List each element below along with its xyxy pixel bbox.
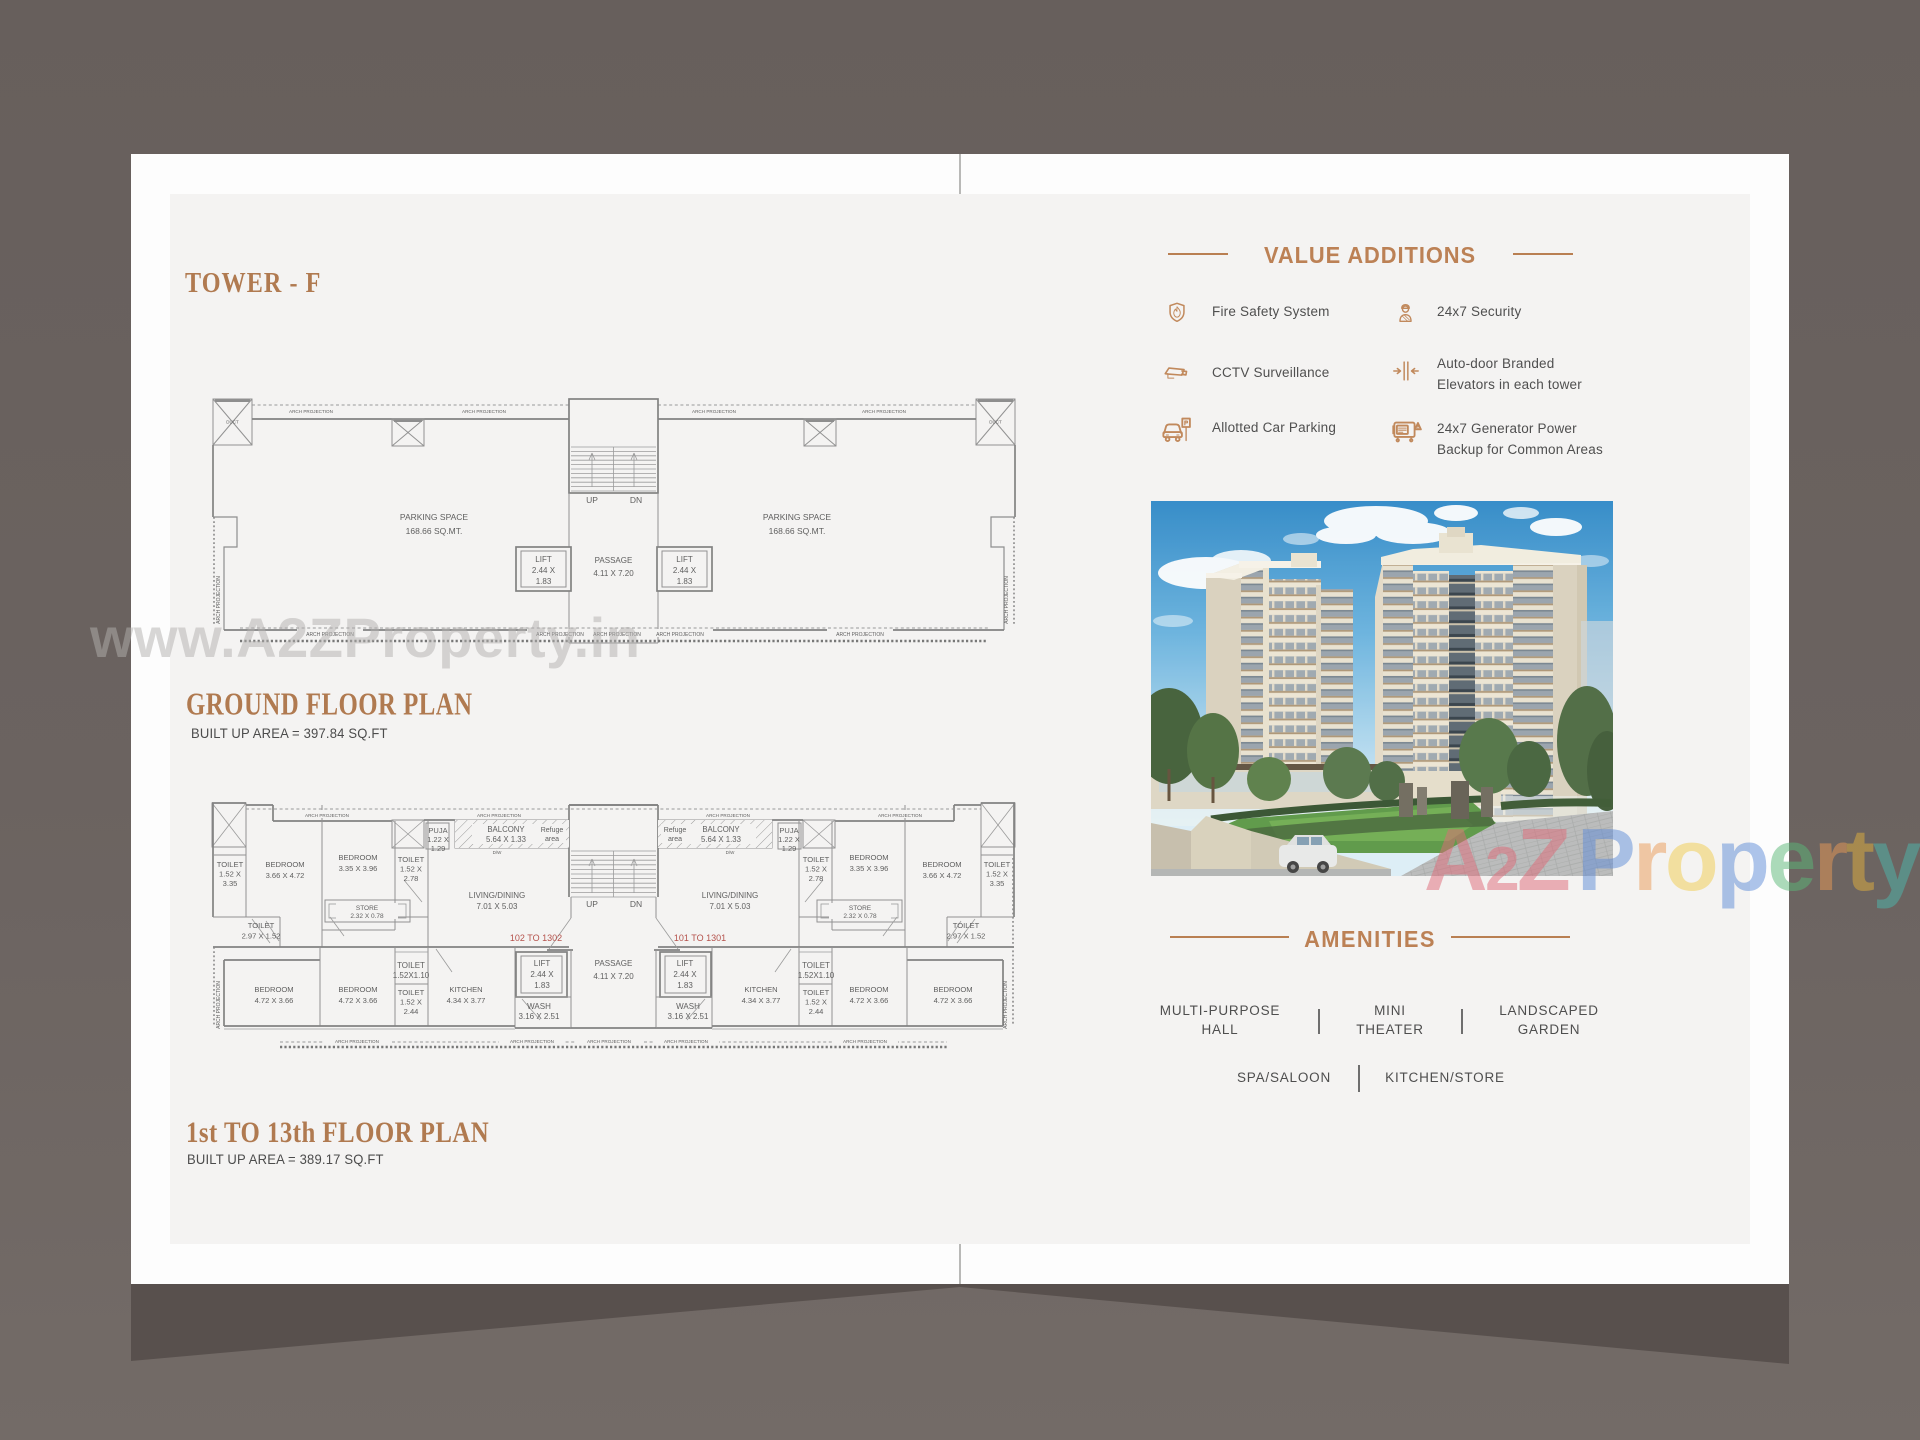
- svg-text:ARCH PROJECTION: ARCH PROJECTION: [510, 1039, 554, 1044]
- svg-text:2.44 X: 2.44 X: [673, 970, 697, 979]
- svg-text:area: area: [668, 836, 682, 843]
- svg-text:BALCONY: BALCONY: [702, 825, 740, 834]
- svg-text:3.66 X 4.72: 3.66 X 4.72: [923, 871, 962, 880]
- svg-text:LIVING/DINING: LIVING/DINING: [469, 891, 525, 900]
- svg-text:D/W: D/W: [726, 850, 736, 855]
- svg-text:ARCH PROJECTION: ARCH PROJECTION: [335, 1039, 379, 1044]
- svg-text:PUJA: PUJA: [779, 826, 798, 835]
- svg-text:BEDROOM: BEDROOM: [265, 860, 304, 869]
- svg-text:DN: DN: [630, 899, 642, 909]
- svg-text:UP: UP: [586, 899, 598, 909]
- svg-text:D/W: D/W: [493, 850, 503, 855]
- svg-text:TOILET: TOILET: [802, 961, 830, 970]
- svg-text:BEDROOM: BEDROOM: [254, 985, 293, 994]
- svg-text:3.35: 3.35: [990, 879, 1005, 888]
- svg-text:1.52 X: 1.52 X: [805, 998, 827, 1007]
- svg-text:BALCONY: BALCONY: [487, 825, 525, 834]
- svg-text:TOILET: TOILET: [248, 921, 275, 930]
- svg-text:2.78: 2.78: [809, 874, 824, 883]
- svg-text:4.72 X 3.66: 4.72 X 3.66: [339, 996, 378, 1005]
- svg-text:STORE: STORE: [356, 905, 379, 912]
- svg-text:TOILET: TOILET: [398, 855, 425, 864]
- svg-text:1.29: 1.29: [431, 844, 446, 853]
- svg-text:2.97 X 1.52: 2.97 X 1.52: [947, 932, 986, 941]
- svg-text:TOILET: TOILET: [217, 860, 244, 869]
- svg-text:4.72 X 3.66: 4.72 X 3.66: [850, 996, 889, 1005]
- svg-text:BEDROOM: BEDROOM: [933, 985, 972, 994]
- svg-text:4.34 X 3.77: 4.34 X 3.77: [742, 996, 781, 1005]
- svg-text:1.52 X: 1.52 X: [400, 865, 422, 874]
- svg-text:WASH: WASH: [527, 1002, 551, 1011]
- svg-text:ARCH PROJECTION: ARCH PROJECTION: [305, 813, 349, 818]
- svg-text:BEDROOM: BEDROOM: [338, 985, 377, 994]
- svg-text:TOILET: TOILET: [397, 961, 425, 970]
- svg-text:ARCH PROJECTION: ARCH PROJECTION: [843, 1039, 887, 1044]
- svg-text:2.78: 2.78: [404, 874, 419, 883]
- svg-text:2.44: 2.44: [809, 1007, 824, 1016]
- svg-text:ARCH PROJECTION: ARCH PROJECTION: [664, 1039, 708, 1044]
- svg-text:1.22 X: 1.22 X: [427, 835, 449, 844]
- svg-text:1.52 X: 1.52 X: [400, 998, 422, 1007]
- svg-text:ARCH PROJECTION: ARCH PROJECTION: [878, 813, 922, 818]
- svg-text:2.32 X 0.78: 2.32 X 0.78: [843, 913, 877, 920]
- svg-text:BEDROOM: BEDROOM: [922, 860, 961, 869]
- svg-text:4.72 X 3.66: 4.72 X 3.66: [934, 996, 973, 1005]
- svg-text:2.44: 2.44: [404, 1007, 419, 1016]
- svg-text:2.97 X 1.52: 2.97 X 1.52: [242, 932, 281, 941]
- svg-text:4.11 X 7.20: 4.11 X 7.20: [593, 972, 634, 981]
- svg-text:4.34 X 3.77: 4.34 X 3.77: [447, 996, 486, 1005]
- svg-text:KITCHEN: KITCHEN: [744, 985, 777, 994]
- svg-text:3.35: 3.35: [223, 879, 238, 888]
- svg-text:7.01 X 5.03: 7.01 X 5.03: [477, 902, 518, 911]
- svg-text:102 TO 1302: 102 TO 1302: [510, 933, 562, 943]
- svg-text:1.52 X: 1.52 X: [805, 865, 827, 874]
- svg-text:5.64 X 1.33: 5.64 X 1.33: [701, 835, 741, 844]
- svg-text:KITCHEN: KITCHEN: [449, 985, 482, 994]
- svg-text:LIFT: LIFT: [677, 959, 694, 968]
- svg-text:ARCH PROJECTION: ARCH PROJECTION: [477, 813, 521, 818]
- svg-text:ARCH PROJECTION: ARCH PROJECTION: [216, 981, 222, 1029]
- svg-text:TOILET: TOILET: [803, 988, 830, 997]
- svg-text:BEDROOM: BEDROOM: [338, 853, 377, 862]
- svg-text:101 TO 1301: 101 TO 1301: [674, 933, 726, 943]
- svg-text:2.44 X: 2.44 X: [530, 970, 554, 979]
- svg-text:3.35 X 3.96: 3.35 X 3.96: [850, 864, 889, 873]
- svg-text:BEDROOM: BEDROOM: [849, 853, 888, 862]
- svg-text:1.22 X: 1.22 X: [778, 835, 800, 844]
- svg-text:1.29: 1.29: [782, 844, 797, 853]
- svg-text:Refuge: Refuge: [541, 827, 564, 834]
- svg-text:LIVING/DINING: LIVING/DINING: [702, 891, 758, 900]
- svg-text:LIFT: LIFT: [534, 959, 551, 968]
- svg-text:3.35 X 3.96: 3.35 X 3.96: [339, 864, 378, 873]
- svg-text:1.83: 1.83: [534, 981, 550, 990]
- svg-text:STORE: STORE: [849, 905, 872, 912]
- svg-text:7.01 X 5.03: 7.01 X 5.03: [710, 902, 751, 911]
- svg-text:ARCH PROJECTION: ARCH PROJECTION: [587, 1039, 631, 1044]
- svg-text:5.64 X 1.33: 5.64 X 1.33: [486, 835, 526, 844]
- svg-text:3.16 X 2.51: 3.16 X 2.51: [668, 1012, 709, 1021]
- svg-text:1.52X1.10: 1.52X1.10: [393, 971, 430, 980]
- svg-text:TOILET: TOILET: [984, 860, 1011, 869]
- svg-text:Refuge: Refuge: [664, 827, 687, 834]
- svg-text:PASSAGE: PASSAGE: [595, 959, 633, 968]
- svg-text:TOILET: TOILET: [953, 921, 980, 930]
- svg-text:1.52 X: 1.52 X: [219, 870, 241, 879]
- svg-text:1.52X1.10: 1.52X1.10: [798, 971, 835, 980]
- svg-text:area: area: [545, 836, 559, 843]
- svg-text:BEDROOM: BEDROOM: [849, 985, 888, 994]
- svg-text:WASH: WASH: [676, 1002, 700, 1011]
- svg-text:1.83: 1.83: [677, 981, 693, 990]
- svg-text:1.52 X: 1.52 X: [986, 870, 1008, 879]
- svg-text:2.32 X 0.78: 2.32 X 0.78: [350, 913, 384, 920]
- svg-text:PUJA: PUJA: [428, 826, 447, 835]
- svg-text:ARCH PROJECTION: ARCH PROJECTION: [706, 813, 750, 818]
- svg-text:3.66 X 4.72: 3.66 X 4.72: [266, 871, 305, 880]
- svg-text:3.16 X 2.51: 3.16 X 2.51: [519, 1012, 560, 1021]
- svg-text:ARCH PROJECTION: ARCH PROJECTION: [1003, 981, 1009, 1029]
- svg-text:4.72 X 3.66: 4.72 X 3.66: [255, 996, 294, 1005]
- svg-text:TOILET: TOILET: [398, 988, 425, 997]
- svg-text:TOILET: TOILET: [803, 855, 830, 864]
